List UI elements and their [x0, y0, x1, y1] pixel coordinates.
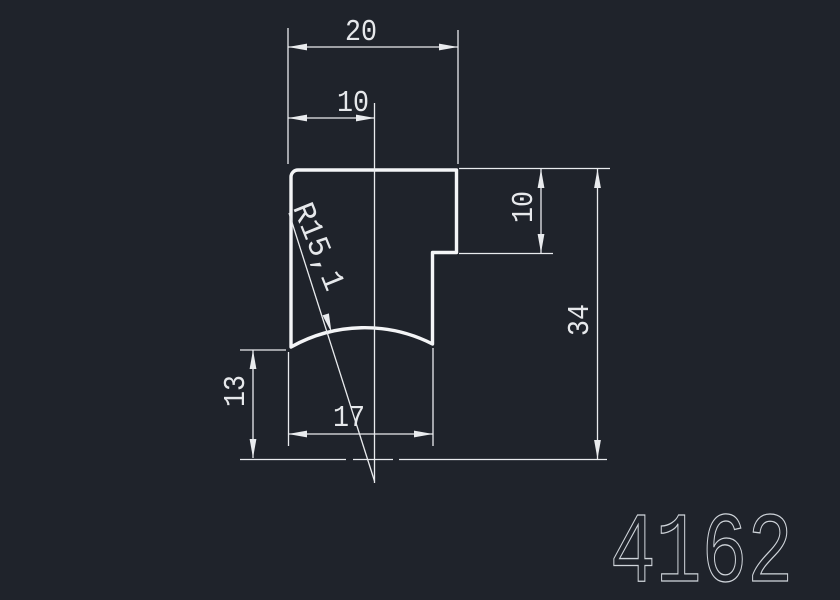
- arrow-right-icon: [414, 431, 433, 438]
- arrow-up-icon: [250, 350, 257, 369]
- arrow-up-icon: [538, 169, 545, 188]
- dim-height-left-label: 13: [219, 375, 254, 407]
- dim-width-total: 20: [288, 15, 458, 50]
- part-number: 4162: [610, 499, 793, 600]
- arrow-down-icon: [538, 234, 545, 253]
- dim-step-height-label: 10: [507, 191, 542, 223]
- radius-leader: R15,1: [283, 198, 374, 481]
- dim-height-total: 34: [563, 169, 601, 459]
- arrow-up-icon: [594, 169, 601, 188]
- radius-label: R15,1: [283, 198, 350, 296]
- arrow-down-icon: [594, 440, 601, 459]
- dim-step-height: 10: [507, 169, 544, 253]
- arrow-left-icon: [288, 431, 307, 438]
- arrow-left-icon: [288, 44, 307, 51]
- dim-width-left-label: 10: [337, 86, 369, 121]
- dim-width-total-label: 20: [345, 15, 377, 50]
- dim-height-total-label: 34: [563, 304, 598, 336]
- dim-width-bottom-label: 17: [333, 401, 365, 436]
- dim-height-left: 13: [219, 350, 256, 458]
- dim-width-left: 10: [288, 86, 375, 121]
- arrow-left-icon: [288, 115, 307, 122]
- cad-drawing-canvas: 20 10 10 34 13: [0, 0, 840, 600]
- arrow-down-icon: [250, 439, 257, 458]
- arrow-right-icon: [439, 44, 458, 51]
- dim-width-bottom: 17: [288, 401, 433, 437]
- technical-drawing: 20 10 10 34 13: [0, 0, 840, 600]
